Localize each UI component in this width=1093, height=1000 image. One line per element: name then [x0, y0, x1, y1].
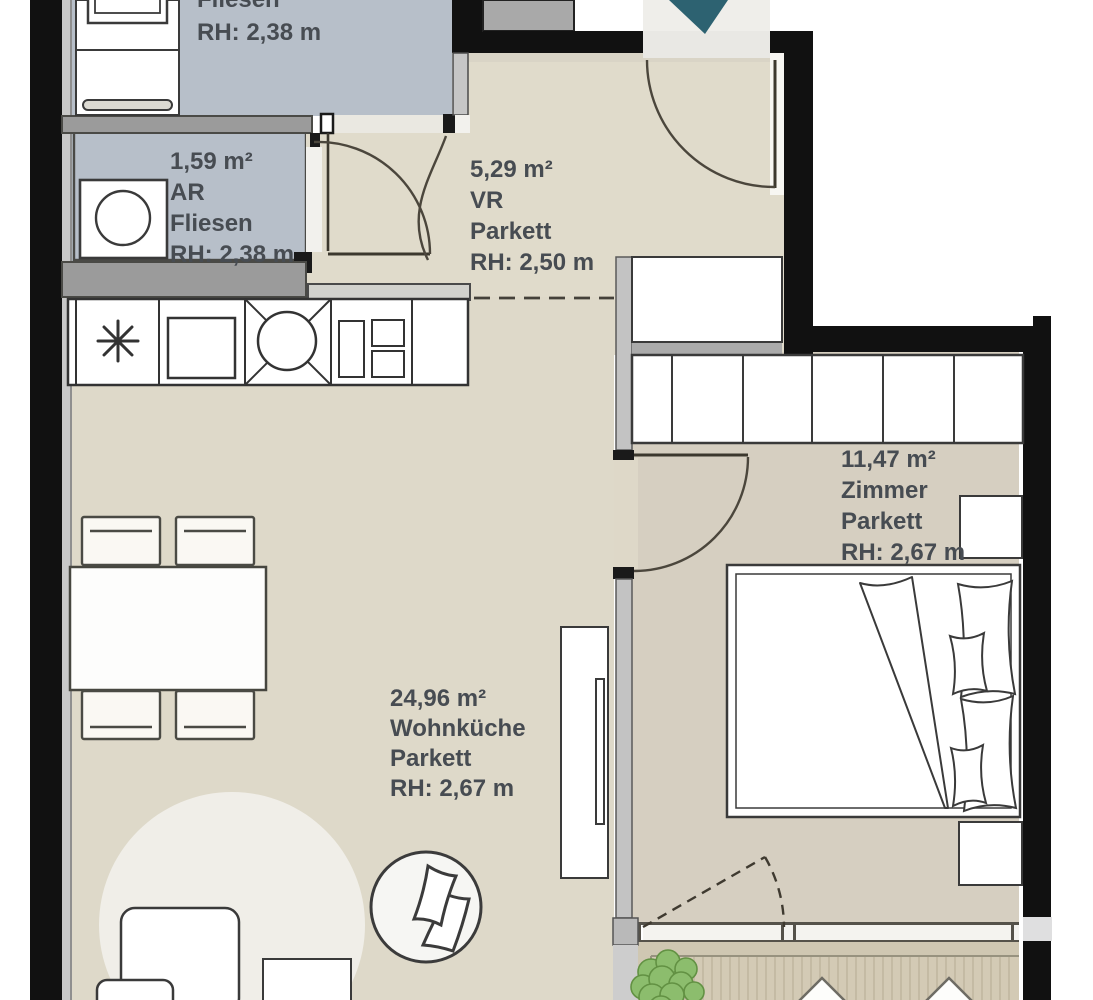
svg-text:Zimmer: Zimmer — [841, 477, 928, 504]
svg-text:24,96 m²: 24,96 m² — [390, 685, 486, 712]
svg-text:RH: 2,67 m: RH: 2,67 m — [390, 775, 514, 802]
svg-text:1,59 m²: 1,59 m² — [170, 148, 253, 175]
svg-text:Wohnküche: Wohnküche — [390, 715, 526, 742]
svg-text:RH: 2,38 m: RH: 2,38 m — [197, 19, 321, 46]
svg-text:RH: 2,50 m: RH: 2,50 m — [470, 249, 594, 276]
svg-text:VR: VR — [470, 187, 503, 214]
svg-text:RH: 2,38 m: RH: 2,38 m — [170, 241, 294, 268]
svg-text:AR: AR — [170, 179, 205, 206]
svg-text:RH: 2,67 m: RH: 2,67 m — [841, 539, 965, 566]
svg-text:5,29 m²: 5,29 m² — [470, 156, 553, 183]
svg-text:11,47 m²: 11,47 m² — [841, 446, 936, 473]
svg-text:Fliesen: Fliesen — [170, 210, 253, 237]
svg-text:Parkett: Parkett — [470, 218, 551, 245]
svg-text:Parkett: Parkett — [390, 745, 471, 772]
svg-text:Parkett: Parkett — [841, 508, 922, 535]
svg-text:Fliesen: Fliesen — [197, 0, 280, 13]
